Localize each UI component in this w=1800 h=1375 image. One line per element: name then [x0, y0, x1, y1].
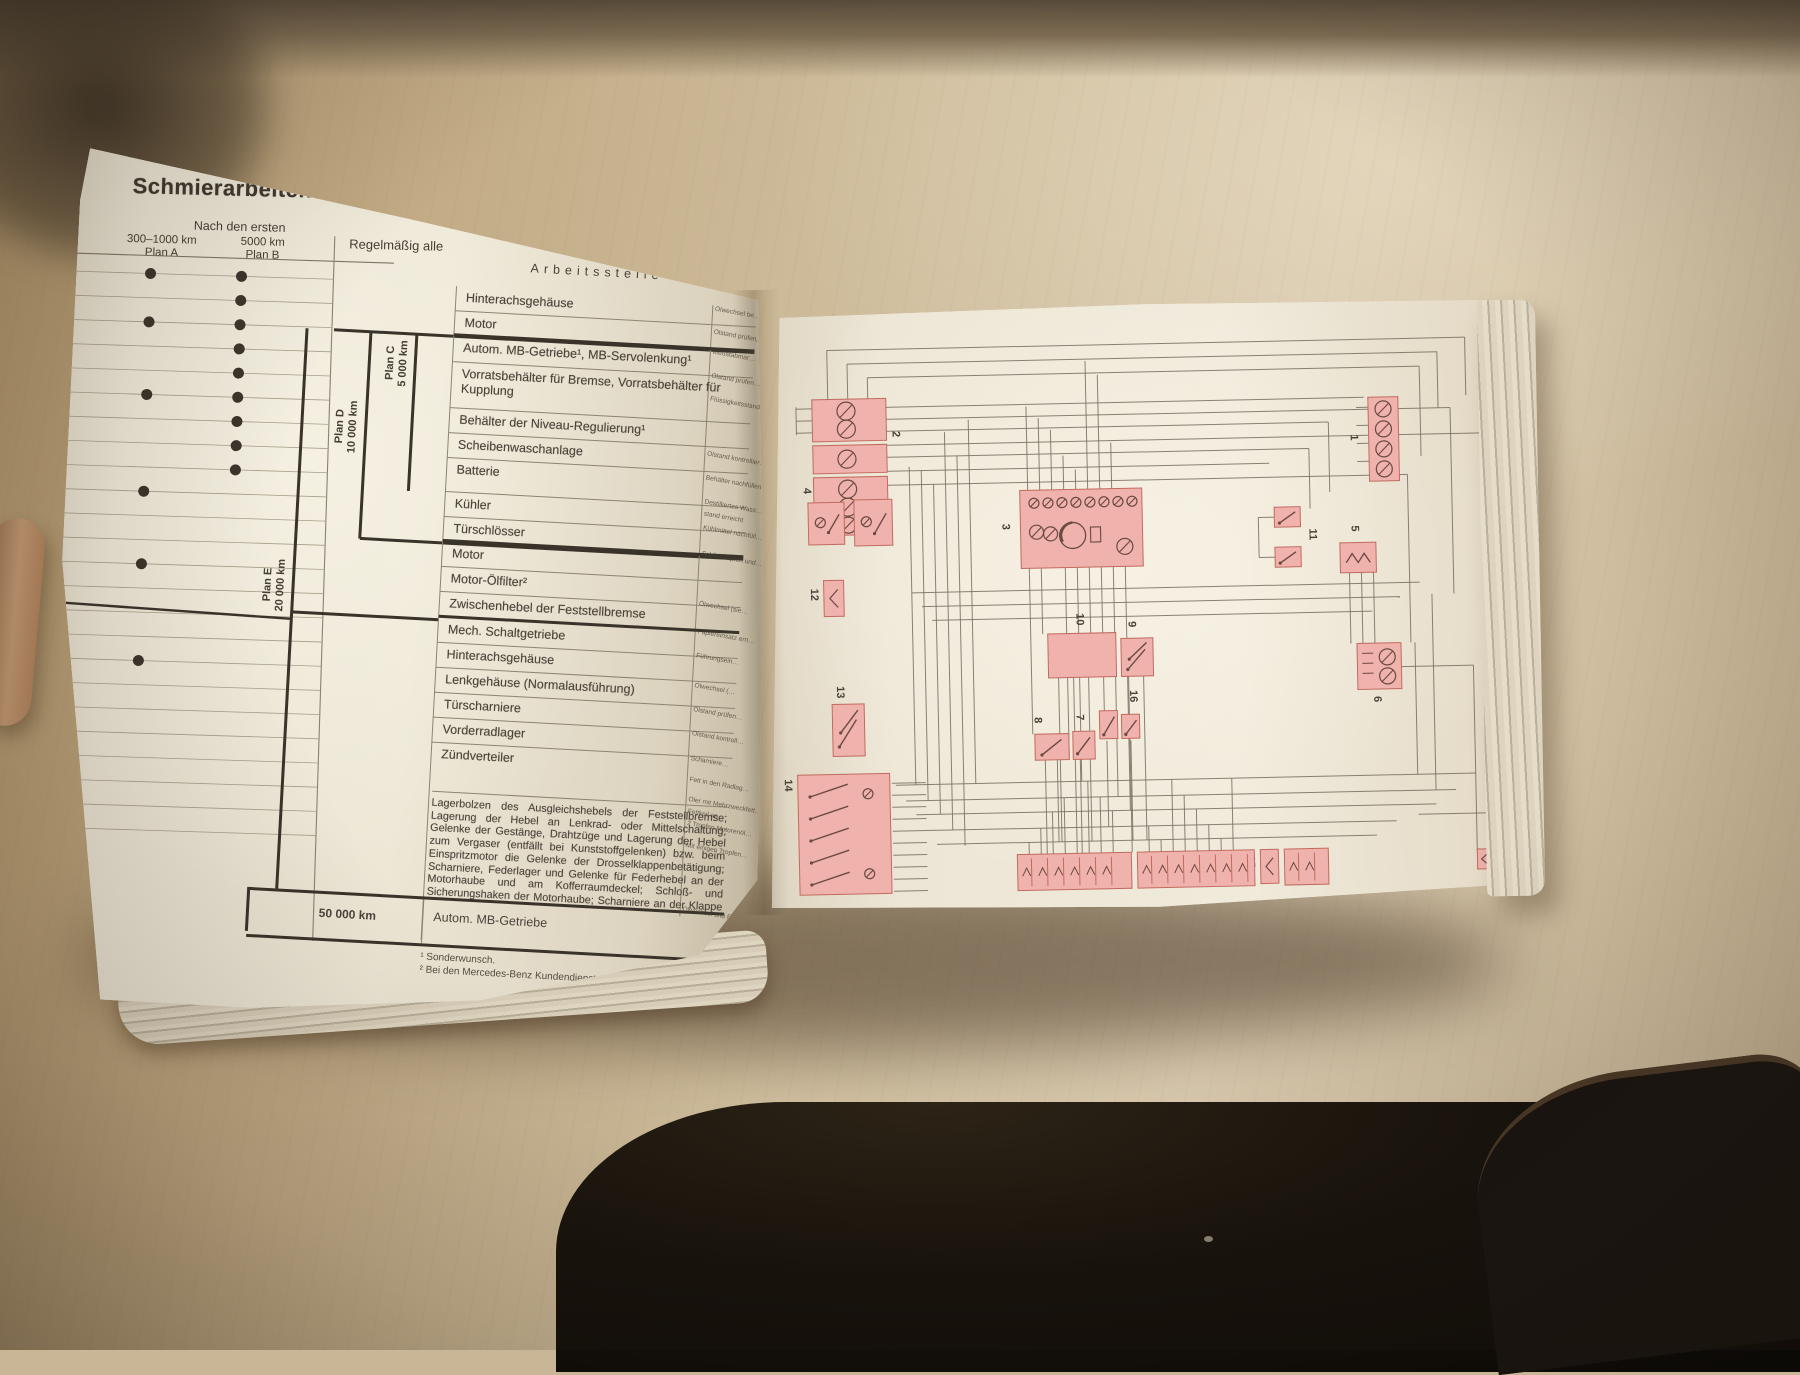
final-interval-km: 50 000 km [277, 904, 418, 926]
diagram-component-1: 1 [1368, 397, 1400, 482]
plan-d-label: Plan D 10 000 km [331, 381, 362, 472]
diagram-component-12: 12 [824, 580, 845, 616]
component-glyph [1121, 638, 1154, 677]
final-interval-worksite: Autom. MB-Getriebe [433, 910, 548, 930]
component-glyph [824, 580, 845, 616]
diagram-component-8: 8 [1035, 734, 1070, 761]
component-number: 3 [999, 524, 1011, 530]
component-glyph [1048, 633, 1117, 678]
component-number: 1 [1348, 434, 1360, 440]
connector-strip-segment [1017, 852, 1132, 890]
component-number: 11 [1306, 528, 1318, 540]
connector-strip-segment [1137, 850, 1255, 888]
component-glyph [832, 704, 865, 757]
diagram-component-5: 5 [1340, 542, 1377, 573]
component-glyph [1368, 397, 1400, 482]
diagram-component-11: 11 [1274, 507, 1301, 568]
component-number: 8 [1031, 717, 1043, 723]
component-number: 6 [1371, 696, 1383, 702]
component-glyph [1035, 734, 1070, 761]
plan-e-label: Plan E 20 000 km [259, 537, 290, 633]
component-glyph [1274, 507, 1301, 568]
component-glyph [808, 499, 893, 547]
worksite-rows: Hinterachsgehäuse Motor Autom. MB-Getrie… [430, 286, 757, 797]
diagram-component-13: 13 [832, 704, 865, 757]
plan-c-label: Plan C 5 000 km [382, 323, 412, 404]
diagram-component-4: 4 [808, 499, 893, 547]
component-number: 12 [808, 589, 820, 601]
diagram-component-14: 14 [798, 773, 892, 895]
component-number: 4 [801, 488, 813, 494]
diagram-component-6: 6 [1357, 643, 1402, 690]
diagram-component-9: 9 [1121, 638, 1154, 677]
component-number: 13 [834, 686, 846, 698]
component-glyph [1020, 488, 1144, 569]
component-number: 16 [1127, 690, 1139, 702]
right-page: 2 4 12 13 14 3 10 9 16 8 7 1 11 5 6 [758, 288, 1530, 913]
component-number: 9 [1126, 621, 1138, 627]
diagram-component-7: 7 [1073, 731, 1096, 759]
component-glyph [1017, 852, 1132, 890]
component-glyph [1357, 643, 1402, 690]
component-glyph [1284, 848, 1329, 885]
page-stack-right-edge [1477, 300, 1545, 897]
diagram-component-3: 3 [1020, 488, 1144, 569]
connector-strip-segment [1284, 848, 1329, 885]
component-glyph [1137, 850, 1255, 888]
component-glyph [1099, 710, 1140, 741]
reflection-speck [1204, 1236, 1213, 1242]
diagram-component-15: 15 [1260, 849, 1279, 883]
component-number: 5 [1349, 525, 1361, 531]
component-glyph [1260, 849, 1279, 883]
component-glyph [798, 773, 892, 895]
diagram-component-10: 10 [1048, 633, 1117, 678]
component-number: 2 [889, 431, 901, 437]
diagram-component-16: 16 [1099, 710, 1140, 741]
component-number: 10 [1073, 613, 1085, 625]
wiring-diagram: 2 4 12 13 14 3 10 9 16 8 7 1 11 5 6 [766, 292, 1518, 907]
component-number: 7 [1073, 714, 1085, 720]
column-divider [421, 899, 424, 943]
component-glyph [1073, 731, 1096, 759]
lubrication-paragraph: Lagerbolzen des Ausgleichshebels der Fes… [426, 791, 727, 913]
component-glyph [1340, 542, 1377, 573]
